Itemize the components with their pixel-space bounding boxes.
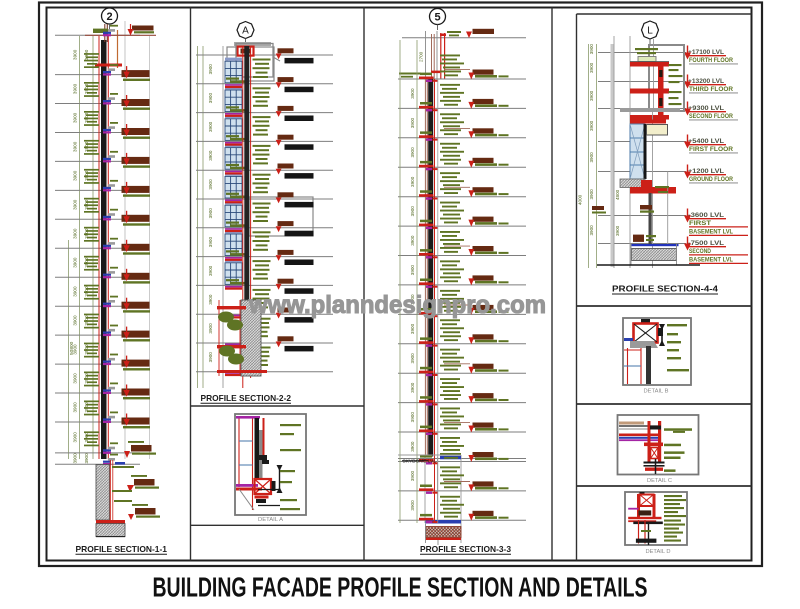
svg-text:3900: 3900: [410, 382, 415, 393]
svg-text:+17100 LVL: +17100 LVL: [688, 49, 724, 56]
svg-text:3900: 3900: [410, 441, 415, 452]
svg-text:3900: 3900: [73, 257, 78, 268]
svg-text:3900: 3900: [72, 453, 77, 464]
svg-text:3900: 3900: [410, 265, 415, 276]
svg-text:3900: 3900: [73, 315, 78, 326]
svg-text:-7500 LVL: -7500 LVL: [688, 240, 724, 247]
svg-text:A: A: [242, 26, 249, 37]
svg-text:3900: 3900: [410, 147, 415, 158]
svg-text:3900: 3900: [208, 323, 213, 334]
svg-text:THIRD FLOOR: THIRD FLOOR: [689, 86, 734, 93]
svg-text:GROUND FLOOR: GROUND FLOOR: [689, 176, 733, 183]
svg-text:3900: 3900: [410, 353, 415, 364]
svg-text:+1200 LVL: +1200 LVL: [688, 168, 724, 175]
svg-text:3900: 3900: [73, 373, 78, 384]
svg-text:PROFILE SECTION-1-1: PROFILE SECTION-1-1: [76, 544, 168, 554]
svg-text:3900: 3900: [410, 323, 415, 334]
svg-text:2700: 2700: [419, 51, 424, 62]
svg-text:DETAIL A: DETAIL A: [258, 517, 284, 523]
svg-text:3900: 3900: [72, 112, 77, 123]
svg-text:4000: 4000: [578, 194, 583, 205]
svg-text:BASEMENT LVL: BASEMENT LVL: [689, 257, 733, 264]
svg-text:3900: 3900: [410, 471, 415, 482]
svg-text:3900: 3900: [410, 88, 415, 99]
svg-text:PROFILE SECTION-4-4: PROFILE SECTION-4-4: [612, 284, 718, 294]
svg-text:3900: 3900: [589, 225, 594, 236]
svg-text:3900: 3900: [208, 352, 213, 363]
svg-text:2: 2: [106, 11, 112, 23]
svg-text:3900: 3900: [589, 152, 594, 163]
svg-text:3900: 3900: [410, 206, 415, 217]
svg-text:3900: 3900: [73, 83, 78, 94]
svg-text:3900: 3900: [589, 62, 594, 73]
svg-text:5: 5: [434, 12, 440, 24]
svg-text:3900: 3900: [589, 120, 594, 131]
svg-text:+5400 LVL: +5400 LVL: [688, 138, 724, 145]
svg-text:3900: 3900: [72, 344, 77, 355]
svg-text:3900: 3900: [615, 225, 620, 236]
svg-text:3900: 3900: [72, 286, 77, 297]
svg-text:FIRST: FIRST: [689, 220, 711, 227]
svg-text:3900: 3900: [72, 49, 77, 60]
svg-text:DETAIL C: DETAIL C: [647, 478, 672, 484]
svg-text:3900: 3900: [84, 453, 89, 464]
svg-text:3900: 3900: [208, 121, 213, 132]
svg-text:3900: 3900: [208, 208, 213, 219]
svg-text:3900: 3900: [208, 93, 213, 104]
svg-text:3900: 3900: [84, 432, 89, 443]
svg-text:3900: 3900: [410, 117, 415, 128]
svg-text:3900: 3900: [410, 176, 415, 187]
svg-text:3900: 3900: [589, 44, 594, 55]
svg-text:DETAIL D: DETAIL D: [646, 549, 671, 555]
svg-text:3900: 3900: [208, 237, 213, 248]
svg-text:SECOND FLOOR: SECOND FLOOR: [689, 113, 733, 120]
svg-text:3900: 3900: [208, 179, 213, 190]
svg-text:PROFILE SECTION-3-3: PROFILE SECTION-3-3: [420, 544, 511, 554]
svg-text:3900: 3900: [72, 228, 77, 239]
svg-text:FIRST FLOOR: FIRST FLOOR: [689, 146, 734, 153]
svg-text:3900: 3900: [589, 189, 594, 200]
svg-text:3900: 3900: [410, 235, 415, 246]
svg-text:SECOND: SECOND: [689, 248, 711, 255]
svg-text:3900: 3900: [208, 64, 213, 75]
svg-text:3900: 3900: [589, 90, 594, 101]
svg-text:3900: 3900: [410, 412, 415, 423]
svg-text:3900: 3900: [73, 199, 78, 210]
svg-text:L: L: [647, 26, 653, 37]
svg-text:3900: 3900: [208, 294, 213, 305]
svg-text:PROFILE SECTION-2-2: PROFILE SECTION-2-2: [201, 393, 292, 403]
svg-text:www.planndesignpro.com: www.planndesignpro.com: [248, 291, 546, 319]
svg-text:3900: 3900: [208, 265, 213, 276]
svg-text:3900: 3900: [72, 170, 77, 181]
svg-text:FOURTH FLOOR: FOURTH FLOOR: [689, 57, 733, 64]
svg-text:3900: 3900: [73, 141, 78, 152]
svg-text:+13200 LVL: +13200 LVL: [688, 78, 724, 85]
svg-text:SKYDOME LVL: SKYDOME LVL: [403, 459, 437, 465]
svg-text:3900: 3900: [72, 432, 77, 443]
svg-text:3900: 3900: [410, 500, 415, 511]
svg-text:3900: 3900: [208, 150, 213, 161]
svg-text:4800: 4800: [615, 189, 620, 200]
svg-text:BASEMENT LVL: BASEMENT LVL: [689, 229, 733, 236]
svg-text:BUILDING FACADE PROFILE SECTIO: BUILDING FACADE PROFILE SECTION AND DETA…: [153, 572, 648, 603]
svg-text:-3600 LVL: -3600 LVL: [688, 212, 724, 219]
svg-text:+9300 LVL: +9300 LVL: [688, 105, 724, 112]
svg-text:3900: 3900: [72, 402, 77, 413]
svg-text:DETAIL B: DETAIL B: [644, 389, 670, 395]
